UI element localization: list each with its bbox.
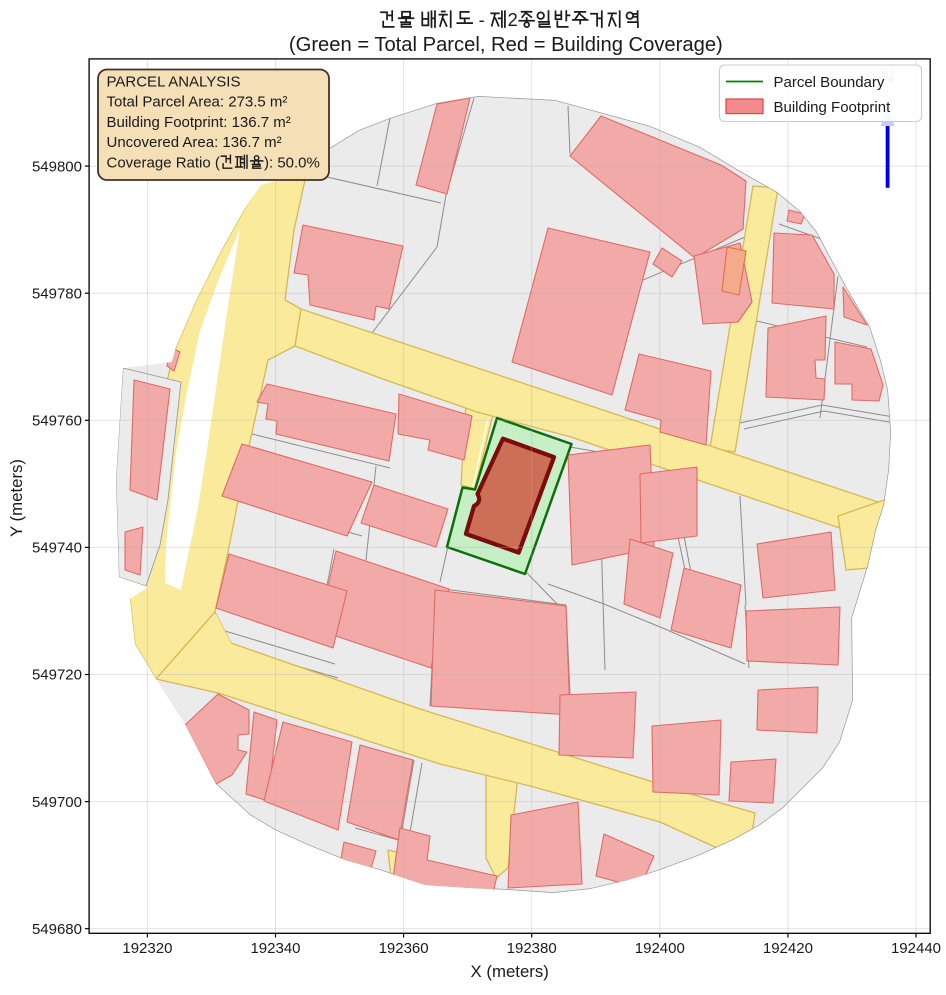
svg-text:549800: 549800 [32,158,82,175]
svg-text:PARCEL ANALYSIS: PARCEL ANALYSIS [107,74,241,91]
svg-text:): 50.0%: ): 50.0% [264,154,320,171]
svg-text:2: 2 [508,10,518,30]
svg-text:549780: 549780 [32,285,82,302]
svg-text:192320: 192320 [122,940,172,957]
svg-text:549680: 549680 [32,921,82,938]
svg-text:Uncovered Area: 136.7 m²: Uncovered Area: 136.7 m² [107,134,282,151]
svg-text:192360: 192360 [379,940,429,957]
svg-text:-: - [474,10,490,30]
svg-text:549720: 549720 [32,667,82,684]
svg-text:Parcel Boundary: Parcel Boundary [774,74,885,91]
svg-text:X (meters): X (meters) [471,962,549,981]
svg-text:192420: 192420 [763,940,813,957]
svg-text:Y (meters): Y (meters) [7,459,26,537]
svg-text:192340: 192340 [250,940,300,957]
svg-text:549760: 549760 [32,413,82,430]
svg-text:192440: 192440 [891,940,941,957]
svg-text:192400: 192400 [635,940,685,957]
svg-text:192380: 192380 [507,940,557,957]
svg-text:Coverage Ratio (: Coverage Ratio ( [107,154,220,171]
svg-text:549740: 549740 [32,540,82,557]
svg-text:Building Footprint: Building Footprint [774,99,892,116]
svg-text:(Green = Total Parcel, Red = B: (Green = Total Parcel, Red = Building Co… [289,34,723,56]
svg-text:Building Footprint: 136.7 m²: Building Footprint: 136.7 m² [107,114,291,131]
svg-text:Total Parcel Area: 273.5 m²: Total Parcel Area: 273.5 m² [107,94,288,111]
svg-text:549700: 549700 [32,794,82,811]
